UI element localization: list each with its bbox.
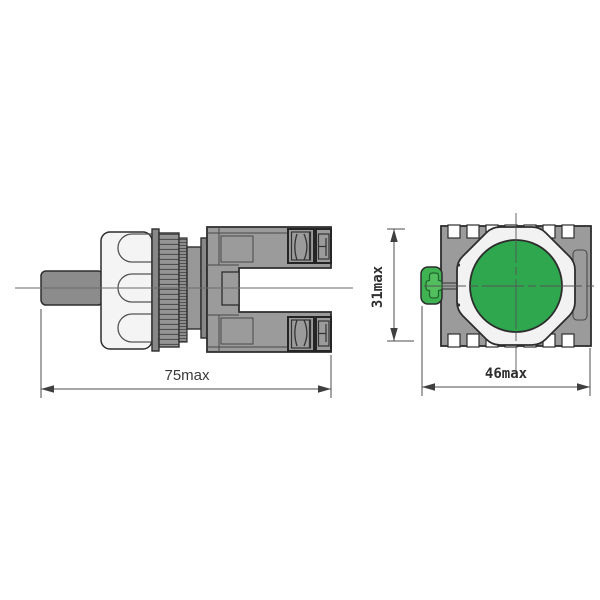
flange-plate [152,229,159,351]
fluted-knob [101,232,152,349]
arrowhead-right [318,385,331,392]
arrowhead-left [41,385,54,392]
notch [562,334,574,347]
front-view: 46max 31max [370,213,596,396]
dimension-label-width: 46max [485,366,528,382]
bezel-pin-bottom [457,303,460,306]
side-view: 75max [15,227,353,398]
dimension-31max: 31max [370,229,414,341]
arrowhead-down [390,328,397,341]
arrowhead-up [390,229,397,242]
arrowhead-right [577,383,590,390]
pushbutton-dimensional-drawing: 75max [0,0,600,600]
plunger-tongue [222,272,239,305]
dimension-label-length: 75max [164,367,210,384]
bezel-pin-top [457,263,460,266]
knurled-ring-inner [179,238,187,342]
dimension-label-height: 31max [370,265,386,308]
arrowhead-left [422,383,435,390]
notch [467,225,479,238]
notch [448,334,460,347]
notch [448,225,460,238]
technical-drawing-canvas: 75max [0,0,600,600]
notch [467,334,479,347]
knurled-ring [159,233,179,347]
notch [562,225,574,238]
